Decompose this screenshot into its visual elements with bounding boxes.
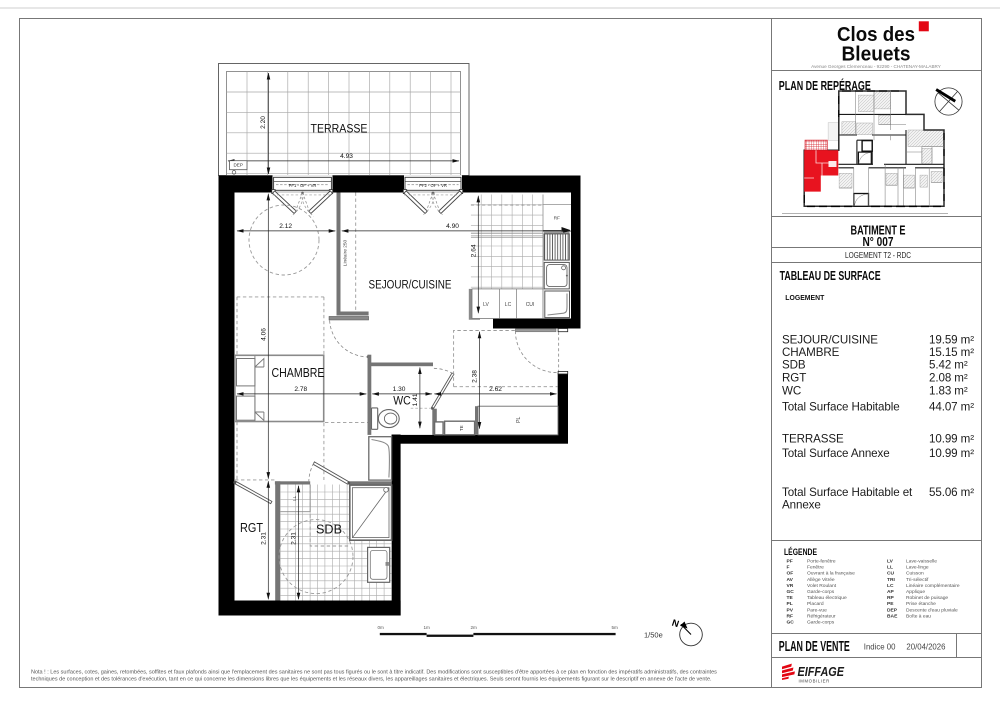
svg-text:WC: WC <box>393 394 411 408</box>
svg-text:Linéaire complémentaire: Linéaire complémentaire <box>906 583 960 589</box>
svg-text:IMMOBILIER: IMMOBILIER <box>799 679 830 684</box>
svg-text:LOGEMENT T2 - RDC: LOGEMENT T2 - RDC <box>845 250 911 260</box>
svg-text:PLAN DE VENTE: PLAN DE VENTE <box>779 639 850 655</box>
svg-text:Nota ! : Les surfaces, cotes,: Nota ! : Les surfaces, cotes, gaines, re… <box>31 670 717 676</box>
svg-text:EIFFAGE: EIFFAGE <box>798 665 845 679</box>
svg-text:0m: 0m <box>378 625 385 630</box>
svg-text:Boîte à eau: Boîte à eau <box>906 613 931 619</box>
svg-text:1.83 m²: 1.83 m² <box>929 385 968 398</box>
svg-text:SDB: SDB <box>316 523 342 537</box>
svg-text:TE: TE <box>787 595 794 601</box>
svg-text:SEJOUR/CUISINE: SEJOUR/CUISINE <box>782 333 878 346</box>
svg-text:Placard: Placard <box>807 601 824 607</box>
svg-text:Cuisson: Cuisson <box>906 571 924 577</box>
svg-text:Lave-linge: Lave-linge <box>906 565 929 571</box>
svg-text:AV: AV <box>787 577 794 583</box>
svg-text:LV: LV <box>887 559 894 565</box>
svg-text:Robinet de puisage: Robinet de puisage <box>906 595 948 601</box>
svg-text:2.62: 2.62 <box>489 386 502 393</box>
svg-text:20/04/2026: 20/04/2026 <box>906 642 945 651</box>
svg-text:PL: PL <box>787 601 793 607</box>
svg-text:PF1 - OF + VR: PF1 - OF + VR <box>289 183 317 188</box>
svg-text:1.30: 1.30 <box>393 386 406 393</box>
svg-text:DEP: DEP <box>233 163 242 168</box>
svg-text:Fenêtre: Fenêtre <box>807 565 824 571</box>
svg-text:Prise étanche: Prise étanche <box>906 601 936 607</box>
svg-text:LL: LL <box>887 565 893 571</box>
svg-text:CHAMBRE: CHAMBRE <box>272 366 325 380</box>
svg-text:SEJOUR/CUISINE: SEJOUR/CUISINE <box>369 280 452 292</box>
svg-text:2.64: 2.64 <box>470 244 477 257</box>
svg-text:N° 007: N° 007 <box>863 235 894 249</box>
svg-text:Annexe: Annexe <box>782 499 821 512</box>
svg-text:RGT: RGT <box>782 372 806 385</box>
svg-text:BAE: BAE <box>887 613 898 619</box>
svg-text:PE: PE <box>887 601 894 607</box>
svg-text:1m: 1m <box>424 625 431 630</box>
svg-text:Lave-vaisselle: Lave-vaisselle <box>906 559 937 565</box>
svg-text:1.41: 1.41 <box>412 393 419 406</box>
svg-text:AP: AP <box>887 589 895 595</box>
svg-text:Garde-corps: Garde-corps <box>807 589 835 595</box>
svg-text:RP: RP <box>887 595 895 601</box>
svg-text:CUI: CUI <box>526 302 535 308</box>
svg-text:2m: 2m <box>471 625 478 630</box>
svg-text:2.08 m²: 2.08 m² <box>929 372 968 385</box>
svg-text:LC: LC <box>887 583 894 589</box>
svg-text:19.59 m²: 19.59 m² <box>929 333 974 346</box>
svg-text:LL: LL <box>292 495 297 501</box>
svg-text:2.78: 2.78 <box>294 386 307 393</box>
svg-text:1/50e: 1/50e <box>644 631 663 640</box>
svg-text:2.31: 2.31 <box>291 532 298 545</box>
svg-text:55.06 m²: 55.06 m² <box>929 486 974 499</box>
svg-text:DEP: DEP <box>887 607 898 613</box>
svg-text:Total Surface Annexe: Total Surface Annexe <box>782 447 890 460</box>
svg-text:Garde-corps: Garde-corps <box>807 620 835 626</box>
svg-text:LÉGENDE: LÉGENDE <box>784 547 817 557</box>
svg-text:Ouvrant à la française: Ouvrant à la française <box>807 571 855 577</box>
svg-text:TRI: TRI <box>887 577 896 583</box>
svg-text:Total Surface Habitable et: Total Surface Habitable et <box>782 486 913 499</box>
svg-text:TERRASSE: TERRASSE <box>782 432 844 445</box>
svg-text:WC: WC <box>782 385 801 398</box>
svg-text:SDB: SDB <box>782 359 806 372</box>
svg-text:15.15 m²: 15.15 m² <box>929 346 974 359</box>
svg-text:4.06: 4.06 <box>260 328 267 341</box>
svg-text:2.38: 2.38 <box>472 370 479 383</box>
svg-text:Allège Vitrée: Allège Vitrée <box>807 577 835 583</box>
svg-text:Tableau électrique: Tableau électrique <box>807 595 847 601</box>
svg-text:TE: TE <box>459 425 464 431</box>
svg-text:RF: RF <box>787 613 794 619</box>
svg-text:TABLEAU DE SURFACE: TABLEAU DE SURFACE <box>780 269 881 283</box>
svg-text:Réfrigérateur: Réfrigérateur <box>807 613 836 619</box>
svg-text:Volet Roulant: Volet Roulant <box>807 583 837 589</box>
svg-text:Descente d'eau pluviale: Descente d'eau pluviale <box>906 607 958 613</box>
svg-text:44.07 m²: 44.07 m² <box>929 401 974 414</box>
svg-text:Total Surface Habitable: Total Surface Habitable <box>782 401 900 414</box>
svg-text:CU: CU <box>887 571 895 577</box>
svg-text:5.42 m²: 5.42 m² <box>929 359 968 372</box>
svg-text:Indice 00: Indice 00 <box>864 642 896 651</box>
svg-text:RF: RF <box>554 216 560 222</box>
svg-text:OF: OF <box>787 571 794 577</box>
svg-text:PV: PV <box>787 607 794 613</box>
svg-text:10.99 m²: 10.99 m² <box>929 447 974 460</box>
svg-text:LOGEMENT: LOGEMENT <box>785 295 825 302</box>
svg-text:Avenue Georges Clemenceau - 92: Avenue Georges Clemenceau - 92290 - CHAT… <box>811 64 941 69</box>
svg-text:Linéaire 250: Linéaire 250 <box>342 239 348 266</box>
svg-text:TERRASSE: TERRASSE <box>311 124 368 136</box>
svg-text:LC: LC <box>505 302 512 308</box>
svg-text:Pare-vue: Pare-vue <box>807 607 827 613</box>
svg-text:PL: PL <box>516 417 522 423</box>
svg-text:5m: 5m <box>612 625 619 630</box>
svg-text:PF: PF <box>787 559 793 565</box>
svg-text:PF2 - OF + VR: PF2 - OF + VR <box>419 183 447 188</box>
svg-text:Applique: Applique <box>906 589 925 595</box>
svg-text:Bleuets: Bleuets <box>842 44 911 66</box>
svg-text:10.99 m²: 10.99 m² <box>929 432 974 445</box>
svg-text:F: F <box>787 565 790 571</box>
svg-text:2.12: 2.12 <box>279 223 292 230</box>
svg-text:CHAMBRE: CHAMBRE <box>782 346 840 359</box>
svg-text:VR: VR <box>787 583 794 589</box>
svg-text:4.90: 4.90 <box>446 223 459 230</box>
svg-text:2.31: 2.31 <box>260 532 267 545</box>
svg-text:techniques de conception et de: techniques de conception et des toléranc… <box>31 677 712 683</box>
svg-text:GC: GC <box>787 620 795 626</box>
svg-text:Porte-fenêtre: Porte-fenêtre <box>807 559 836 565</box>
svg-text:Tri-sélectif: Tri-sélectif <box>906 577 929 583</box>
svg-text:GC: GC <box>787 589 795 595</box>
svg-text:LV: LV <box>483 302 489 308</box>
svg-text:4.93: 4.93 <box>340 153 353 160</box>
svg-text:2.20: 2.20 <box>260 116 267 129</box>
